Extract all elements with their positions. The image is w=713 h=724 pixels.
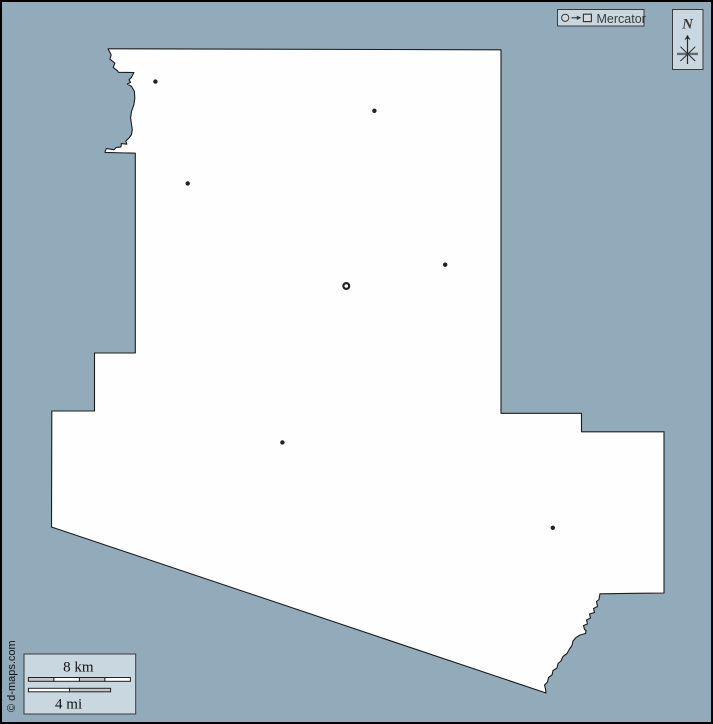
svg-text:4 mi: 4 mi	[55, 696, 82, 712]
svg-text:Mercator: Mercator	[597, 12, 646, 26]
svg-text:8 km: 8 km	[63, 660, 94, 676]
svg-text:N: N	[681, 17, 694, 33]
svg-text:© d-maps.com: © d-maps.com	[6, 640, 18, 712]
